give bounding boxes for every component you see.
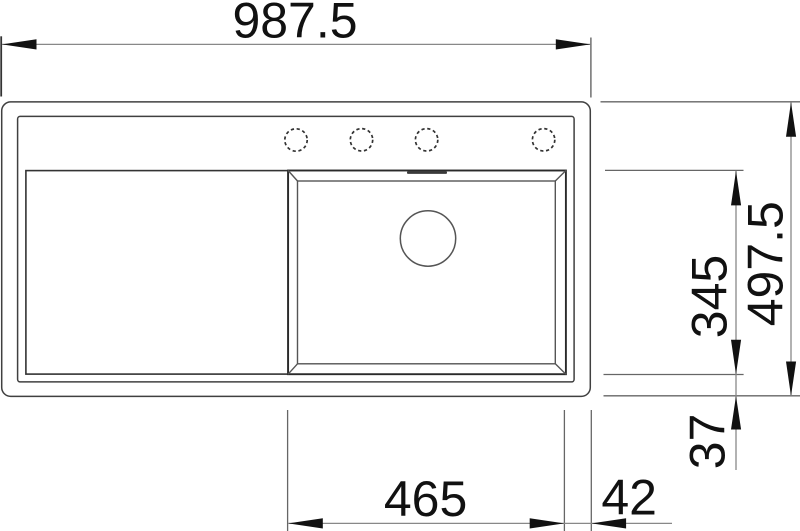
svg-text:37: 37 [679,414,735,470]
svg-text:987.5: 987.5 [232,0,357,49]
svg-text:42: 42 [601,470,657,526]
svg-text:465: 465 [384,471,467,527]
svg-text:497.5: 497.5 [738,201,794,326]
svg-text:345: 345 [681,255,737,338]
